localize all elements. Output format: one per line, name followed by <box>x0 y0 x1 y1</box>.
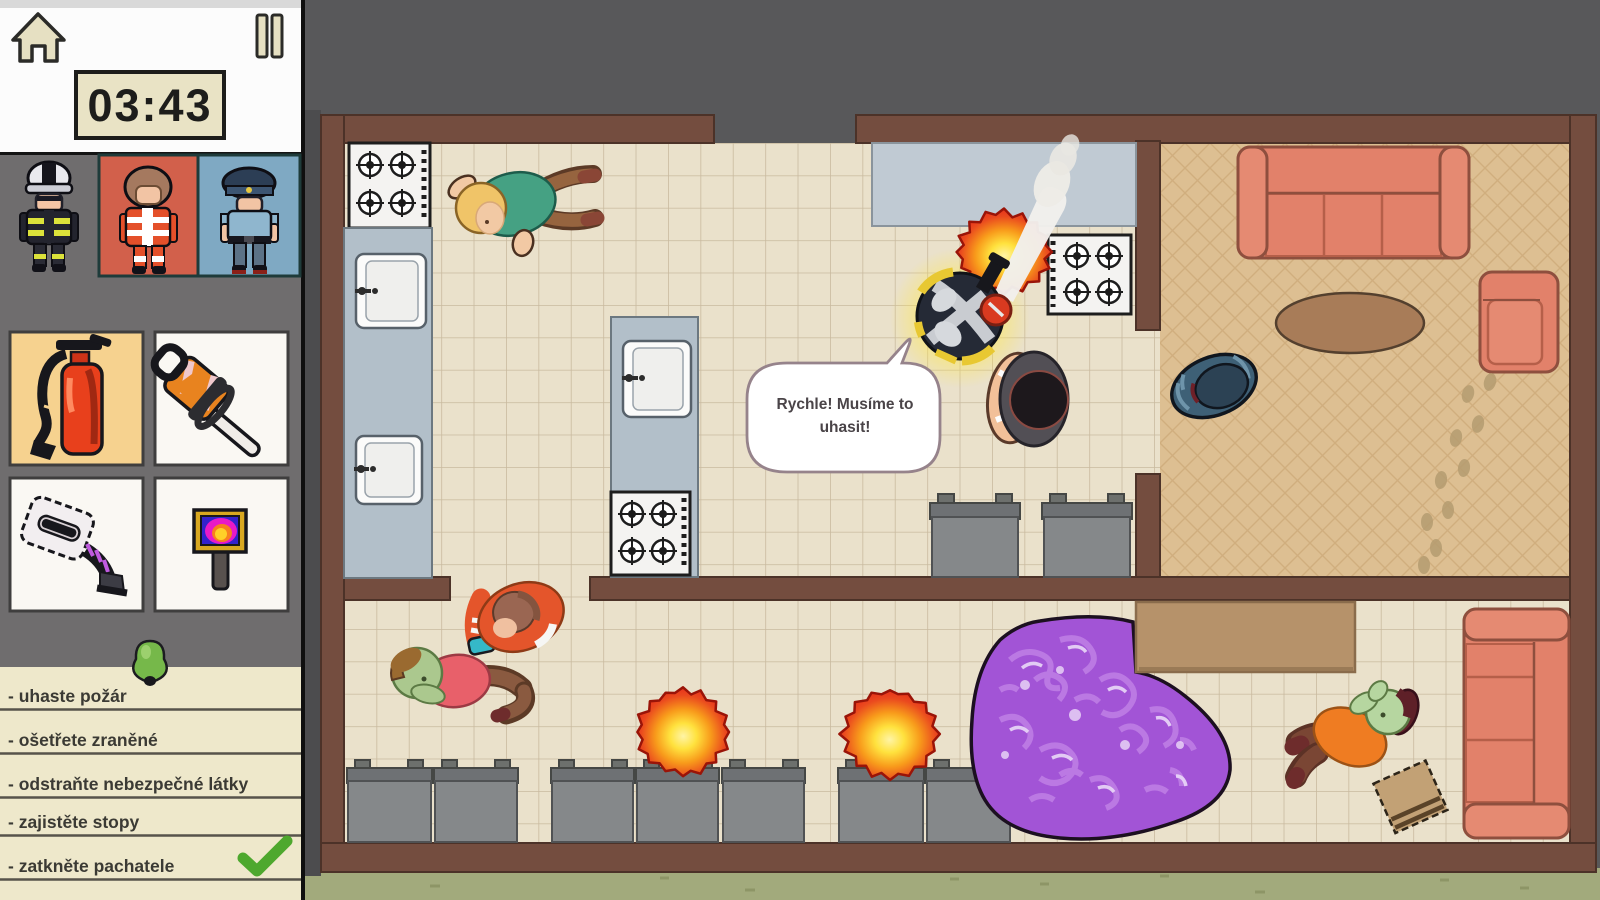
svg-text:Rychle! Musíme to: Rychle! Musíme to <box>777 396 914 413</box>
svg-text:- zajistěte stopy: - zajistěte stopy <box>8 812 140 832</box>
svg-text:uhasit!: uhasit! <box>820 419 871 436</box>
svg-text:- zatkněte pachatele: - zatkněte pachatele <box>8 856 175 876</box>
svg-text:- ošetřete zraněné: - ošetřete zraněné <box>8 730 158 750</box>
svg-text:03:43: 03:43 <box>87 80 212 131</box>
svg-text:- odstraňte nebezpečné látky: - odstraňte nebezpečné látky <box>8 774 248 794</box>
svg-text:- uhaste požár: - uhaste požár <box>8 686 127 706</box>
